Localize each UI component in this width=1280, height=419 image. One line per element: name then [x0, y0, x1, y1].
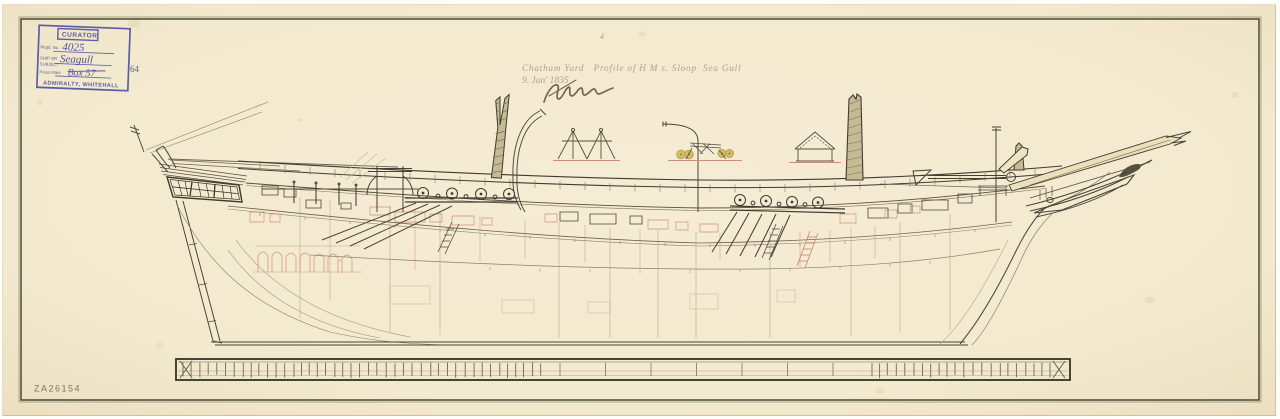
svg-text:SHIP OR: SHIP OR	[40, 55, 57, 61]
svg-text:Press Mark: Press Mark	[39, 69, 61, 75]
svg-text:4: 4	[600, 32, 604, 41]
svg-text:CURATOR: CURATOR	[62, 31, 98, 39]
svg-text:SUBJECT: SUBJECT	[40, 61, 60, 67]
svg-text:Regd. No.: Regd. No.	[40, 44, 59, 50]
svg-text:9. Janʹ 1835: 9. Janʹ 1835	[522, 76, 569, 86]
svg-text:64: 64	[130, 64, 140, 74]
svg-text:ZA26154: ZA26154	[34, 384, 81, 394]
svg-text:Chatham Yard Profile of H M: Chatham Yard Profile of H M s. Sloop Sea…	[522, 63, 741, 73]
